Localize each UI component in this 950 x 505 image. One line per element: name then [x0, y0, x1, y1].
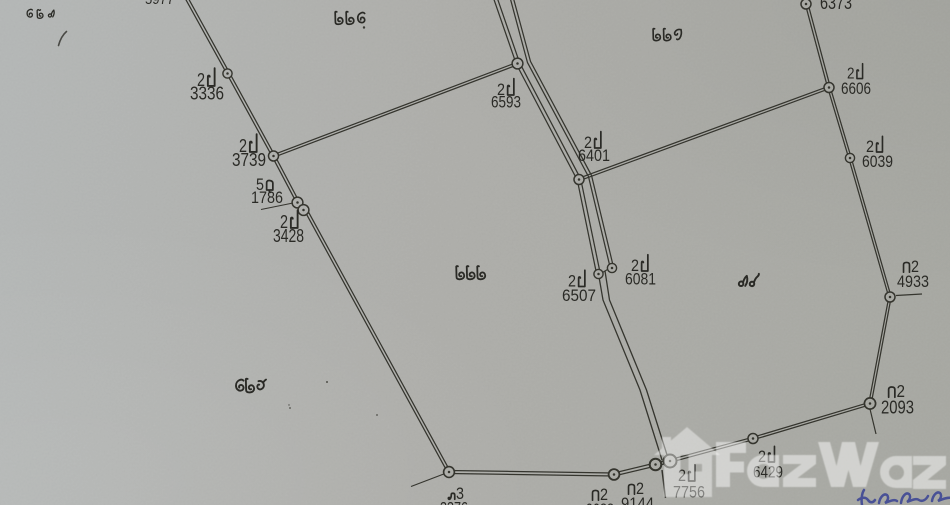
- svg-text:4933: 4933: [897, 272, 929, 291]
- svg-text:6039: 6039: [862, 152, 893, 171]
- svg-text:9088: 9088: [586, 500, 614, 505]
- svg-text:6593: 6593: [491, 93, 521, 112]
- svg-text:3739: 3739: [232, 150, 266, 170]
- svg-text:6401: 6401: [578, 146, 610, 165]
- svg-text:6081: 6081: [625, 270, 656, 289]
- svg-text:5977: 5977: [145, 0, 174, 8]
- svg-text:6373: 6373: [820, 0, 852, 13]
- svg-text:3428: 3428: [273, 226, 304, 246]
- svg-text:3336: 3336: [190, 84, 224, 104]
- svg-text:1786: 1786: [251, 188, 283, 207]
- svg-text:3376: 3376: [440, 499, 468, 505]
- svg-text:2093: 2093: [881, 398, 914, 418]
- svg-text:6507: 6507: [562, 286, 596, 305]
- svg-text:9144: 9144: [621, 494, 654, 505]
- svg-text:6606: 6606: [841, 79, 871, 98]
